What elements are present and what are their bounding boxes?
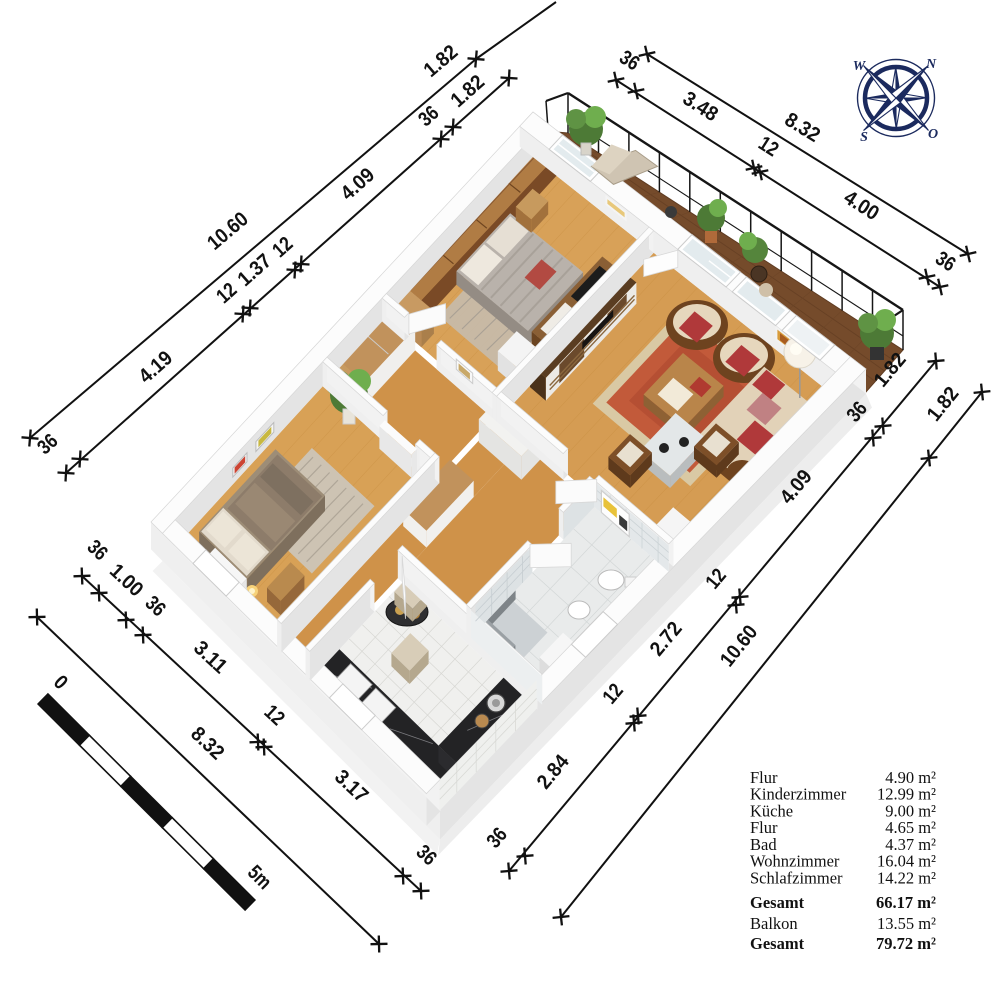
svg-text:S: S [860,130,868,145]
svg-text:14.22 m²: 14.22 m² [877,869,936,888]
svg-text:Schlafzimmer: Schlafzimmer [750,869,843,888]
svg-text:66.17 m²: 66.17 m² [876,893,936,912]
svg-text:Gesamt: Gesamt [750,893,805,912]
svg-text:Gesamt: Gesamt [750,934,805,953]
svg-text:W: W [853,59,867,74]
svg-text:N: N [925,57,937,72]
svg-text:79.72 m²: 79.72 m² [876,934,936,953]
svg-text:O: O [928,127,938,142]
svg-text:Balkon: Balkon [750,914,798,933]
svg-text:13.55 m²: 13.55 m² [877,914,936,933]
